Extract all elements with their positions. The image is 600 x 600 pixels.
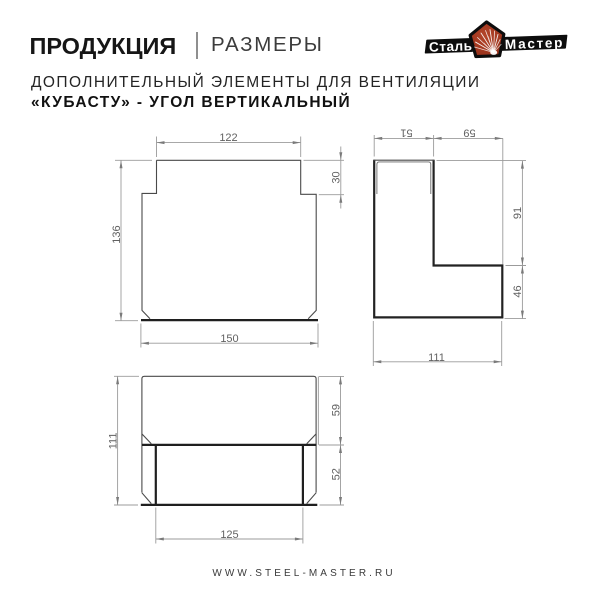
svg-text:52: 52 (330, 468, 342, 480)
svg-text:91: 91 (512, 207, 524, 219)
svg-text:46: 46 (512, 285, 524, 297)
svg-text:111: 111 (428, 352, 445, 364)
svg-text:122: 122 (219, 132, 237, 144)
svg-text:59: 59 (330, 404, 342, 416)
svg-text:Мастер: Мастер (505, 35, 565, 52)
svg-text:59: 59 (463, 127, 475, 139)
svg-text:111: 111 (107, 433, 119, 450)
svg-text:136: 136 (111, 225, 123, 243)
svg-text:51: 51 (400, 127, 412, 139)
svg-text:125: 125 (220, 529, 238, 541)
svg-text:150: 150 (220, 333, 238, 345)
svg-text:30: 30 (330, 171, 342, 183)
svg-text:Сталь: Сталь (429, 38, 473, 55)
